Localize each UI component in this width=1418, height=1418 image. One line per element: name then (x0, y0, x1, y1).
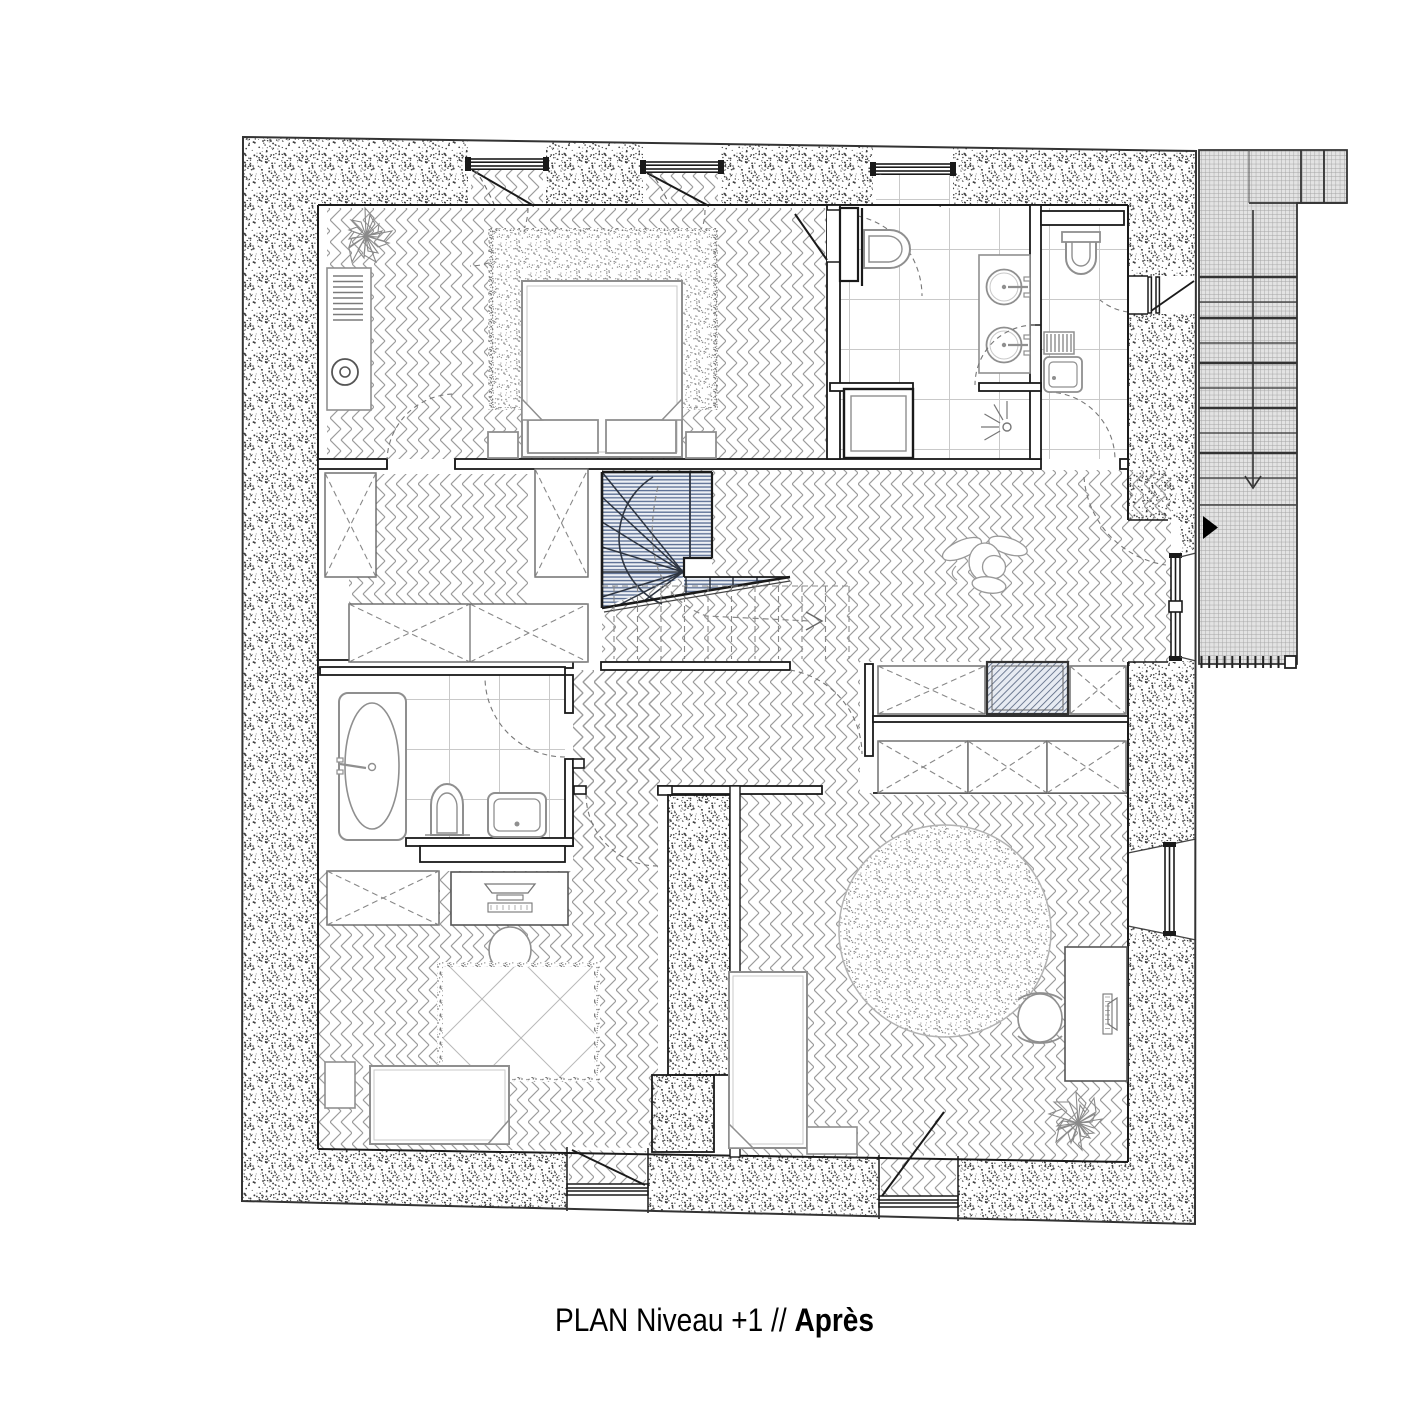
svg-text:PLAN Niveau +1 // Après: PLAN Niveau +1 // Après (555, 1302, 874, 1338)
